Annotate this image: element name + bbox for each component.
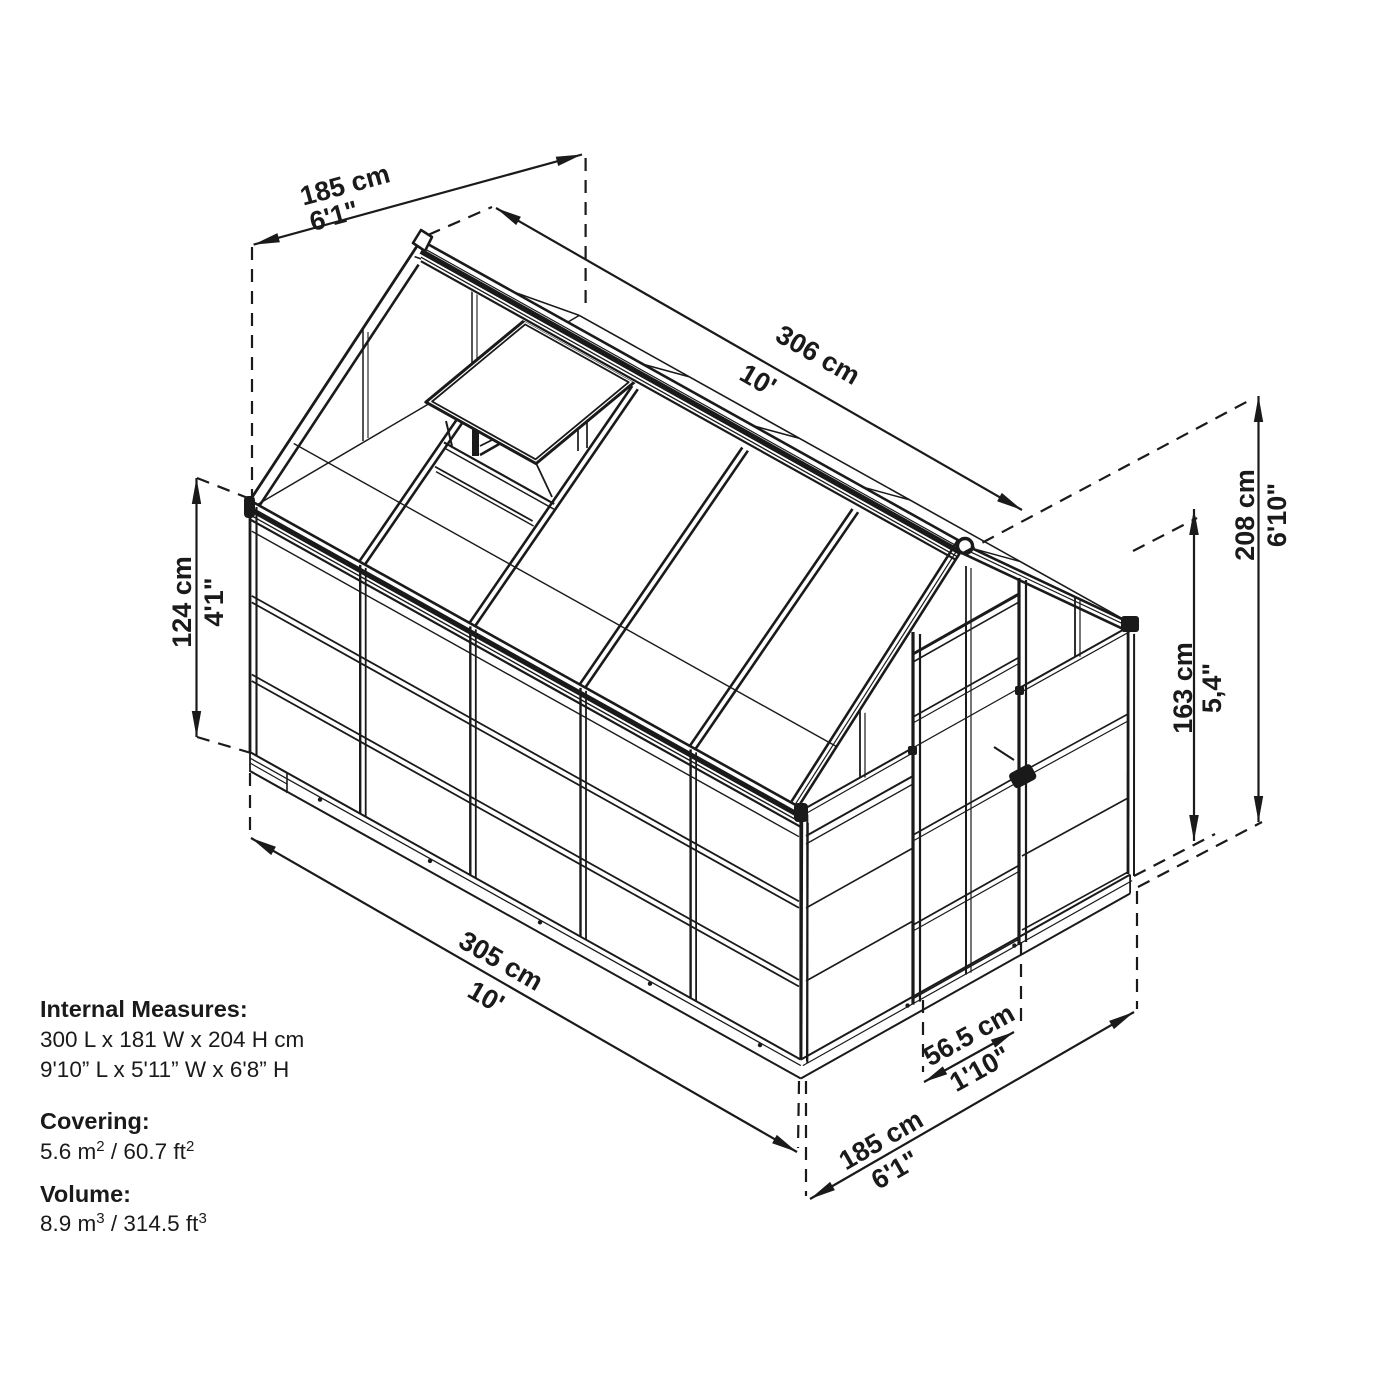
svg-text:163 cm: 163 cm	[1168, 642, 1198, 734]
svg-text:Volume:: Volume:	[40, 1181, 131, 1207]
svg-text:Covering:: Covering:	[40, 1108, 150, 1134]
svg-text:8.9 m3 / 314.5 ft3: 8.9 m3 / 314.5 ft3	[40, 1210, 207, 1236]
svg-text:4'1": 4'1"	[199, 577, 229, 626]
svg-text:Internal Measures:: Internal Measures:	[40, 996, 248, 1022]
svg-text:6'10": 6'10"	[1262, 483, 1292, 547]
svg-text:5.6 m2 / 60.7 ft2: 5.6 m2 / 60.7 ft2	[40, 1138, 194, 1164]
svg-text:124 cm: 124 cm	[167, 556, 197, 648]
svg-text:9'10” L x 5'11” W x 6'8” H: 9'10” L x 5'11” W x 6'8” H	[40, 1057, 289, 1082]
svg-text:5,4": 5,4"	[1197, 663, 1227, 713]
svg-text:208 cm: 208 cm	[1230, 469, 1260, 561]
svg-text:300 L x 181 W x 204 H cm: 300 L x 181 W x 204 H cm	[40, 1027, 304, 1052]
